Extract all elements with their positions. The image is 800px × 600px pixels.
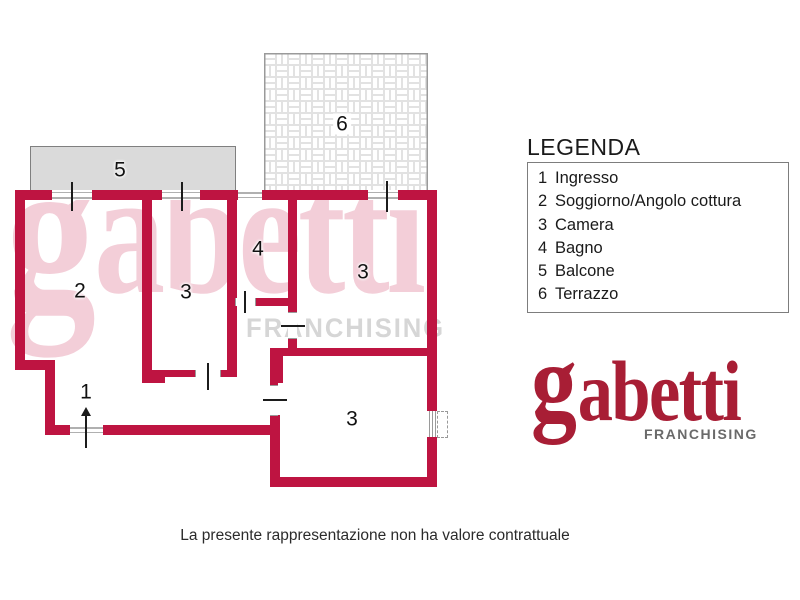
legend-item-label: Balcone	[555, 260, 782, 283]
room-label-camera-basso: 3	[346, 409, 358, 430]
wall-left	[15, 190, 25, 370]
door-jamb	[288, 312, 297, 313]
window-tick	[71, 182, 73, 211]
legend-item-terrazzo: 6 Terrazzo	[534, 283, 782, 306]
door-jamb	[270, 385, 278, 386]
logo-word-rest: abetti	[578, 348, 741, 434]
door-frame-line	[238, 197, 262, 199]
legend-item-number: 5	[534, 260, 555, 283]
legend-item-soggiorno: 2 Soggiorno/Angolo cottura	[534, 190, 782, 213]
floorplan-page: g abetti FRANCHISING	[0, 0, 800, 600]
legend-item-number: 3	[534, 214, 555, 237]
door-tick	[207, 363, 209, 390]
door-tick	[244, 291, 246, 313]
window-tick	[181, 182, 183, 211]
wall-mid-horizontal	[270, 348, 437, 356]
window-pane-line	[429, 411, 430, 437]
door-jamb	[270, 415, 278, 416]
window-shutter-outline	[437, 411, 448, 438]
wall-segment	[288, 338, 297, 348]
wall-segment	[288, 200, 297, 312]
room-label-balcone: 5	[114, 160, 126, 181]
legend-item-label: Ingresso	[555, 167, 782, 190]
wall-segment	[227, 200, 237, 377]
legend-item-number: 6	[534, 283, 555, 306]
legend: LEGENDA 1 Ingresso 2 Soggiorno/Angolo co…	[527, 134, 789, 313]
wall-bottom-right	[270, 477, 437, 487]
door-tick	[263, 399, 287, 401]
wall-segment	[200, 190, 238, 200]
legend-item-label: Bagno	[555, 237, 782, 260]
room-label-soggiorno: 2	[74, 281, 86, 302]
door-jamb	[220, 370, 221, 377]
door-frame-line	[238, 192, 262, 194]
legend-item-label: Terrazzo	[555, 283, 782, 306]
logo-franchising-text: FRANCHISING	[644, 426, 758, 442]
wall-step-horizontal	[15, 360, 55, 370]
legend-item-number: 4	[534, 237, 555, 260]
balcony-area	[30, 146, 236, 191]
legend-item-number: 2	[534, 190, 555, 213]
room-label-bagno: 4	[252, 239, 264, 260]
legend-item-ingresso: 1 Ingresso	[534, 167, 782, 190]
franchising-watermark: FRANCHISING	[246, 313, 445, 344]
wall-pilaster	[272, 356, 283, 383]
legend-title: LEGENDA	[527, 134, 789, 161]
legend-item-number: 1	[534, 167, 555, 190]
window-pane-line	[432, 411, 433, 437]
window-tick	[386, 181, 388, 212]
wall-segment	[220, 370, 237, 377]
entrance-arrow-head	[81, 407, 91, 416]
legend-item-label: Camera	[555, 214, 782, 237]
legend-item-camera: 3 Camera	[534, 214, 782, 237]
wall-segment	[142, 200, 152, 377]
wall-bottom-left	[45, 425, 70, 435]
room-label-terrazzo: 6	[333, 114, 351, 135]
door-tick	[281, 325, 305, 327]
door-jamb	[235, 298, 236, 306]
door-jamb	[288, 338, 297, 339]
entrance-arrow-line	[85, 414, 87, 448]
gabetti-logo: g abetti	[531, 327, 777, 467]
door-jamb	[255, 298, 256, 306]
legend-item-label: Soggiorno/Angolo cottura	[555, 190, 782, 213]
wall-segment	[92, 190, 162, 200]
wall-foot	[142, 370, 165, 383]
legend-item-balcone: 5 Balcone	[534, 260, 782, 283]
wall-right	[427, 190, 437, 411]
door-jamb	[195, 370, 196, 377]
room-label-camera-alto: 3	[357, 262, 369, 283]
window-pane-line	[435, 411, 436, 437]
wall-segment	[262, 190, 368, 200]
legend-box: 1 Ingresso 2 Soggiorno/Angolo cottura 3 …	[527, 162, 789, 313]
window-frame-line	[368, 192, 398, 194]
wall-right	[427, 437, 437, 487]
logo-letter-g: g	[531, 327, 577, 439]
disclaimer-text: La presente rappresentazione non ha valo…	[0, 527, 750, 545]
wall-bottom-left	[103, 425, 280, 435]
room-label-ingresso: 1	[80, 382, 92, 403]
room-label-camera-centro: 3	[180, 282, 192, 303]
legend-item-bagno: 4 Bagno	[534, 237, 782, 260]
window-frame-line	[368, 197, 398, 199]
wall-bath-bottom	[255, 298, 297, 306]
